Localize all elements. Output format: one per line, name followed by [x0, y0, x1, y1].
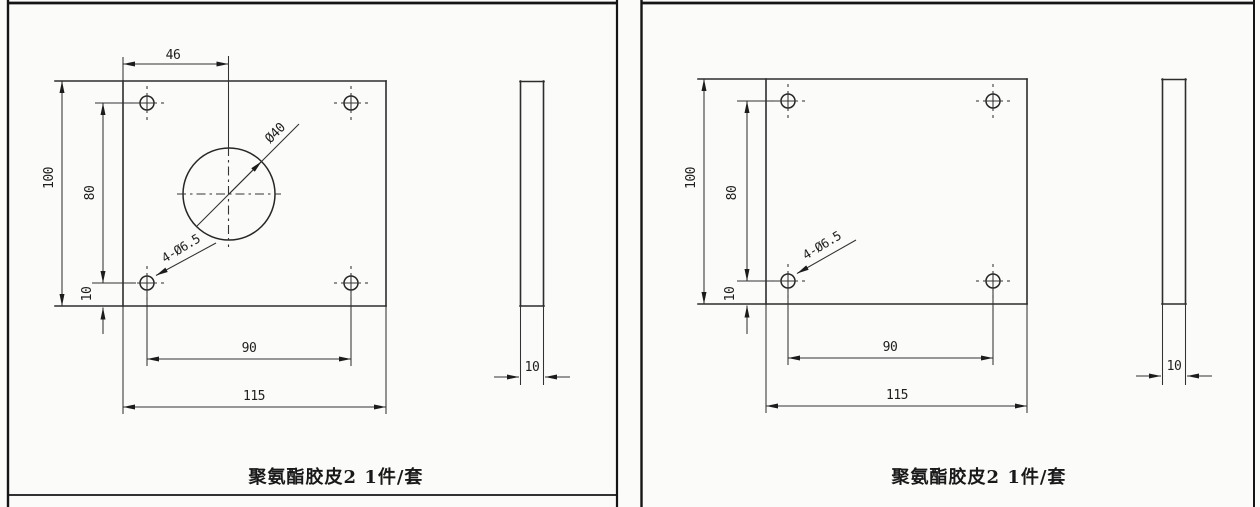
- corner-holes-label: 4-Ø6.5: [159, 231, 203, 266]
- dim-80: [92, 103, 140, 283]
- dim-46-label: 46: [166, 48, 181, 63]
- dim-100-label: 100: [42, 167, 57, 189]
- dim-80-label: 80: [725, 186, 740, 201]
- dim-80: [737, 101, 779, 281]
- right-drawing: 4-Ø6.5 100 80 10 90 115: [684, 79, 1212, 488]
- corner-hole-top-right: [976, 84, 1010, 118]
- dim-90-label: 90: [883, 340, 898, 355]
- center-hole-diameter-label: Ø40: [262, 120, 288, 146]
- corner-holes-label: 4-Ø6.5: [800, 228, 844, 263]
- part-caption: 聚氨酯胶皮2 1件/套: [891, 466, 1067, 488]
- side-thickness-label: 10: [1167, 359, 1182, 374]
- dim-100-label: 100: [684, 167, 699, 189]
- corner-hole-top-right: [334, 86, 368, 120]
- drawing-canvas: Ø40 4-Ø6.5 46 100 80 10: [0, 0, 1260, 507]
- dim-46: [123, 56, 229, 147]
- dim-115-label: 115: [243, 389, 265, 404]
- side-thickness-label: 10: [525, 360, 540, 375]
- page-frame-left: [7, 0, 617, 507]
- left-drawing: Ø40 4-Ø6.5 46 100 80 10: [42, 48, 570, 488]
- engineering-drawing-sheet: Ø40 4-Ø6.5 46 100 80 10: [0, 0, 1260, 507]
- dim-10-offset-label: 10: [80, 287, 95, 302]
- dim-80-label: 80: [83, 186, 98, 201]
- center-hole: [177, 124, 299, 247]
- part-caption: 聚氨酯胶皮2 1件/套: [248, 466, 424, 488]
- side-view: [494, 81, 570, 385]
- dim-10-offset-label: 10: [723, 287, 738, 302]
- side-view: [1136, 79, 1212, 385]
- dim-90-label: 90: [242, 341, 257, 356]
- dim-115-label: 115: [886, 388, 908, 403]
